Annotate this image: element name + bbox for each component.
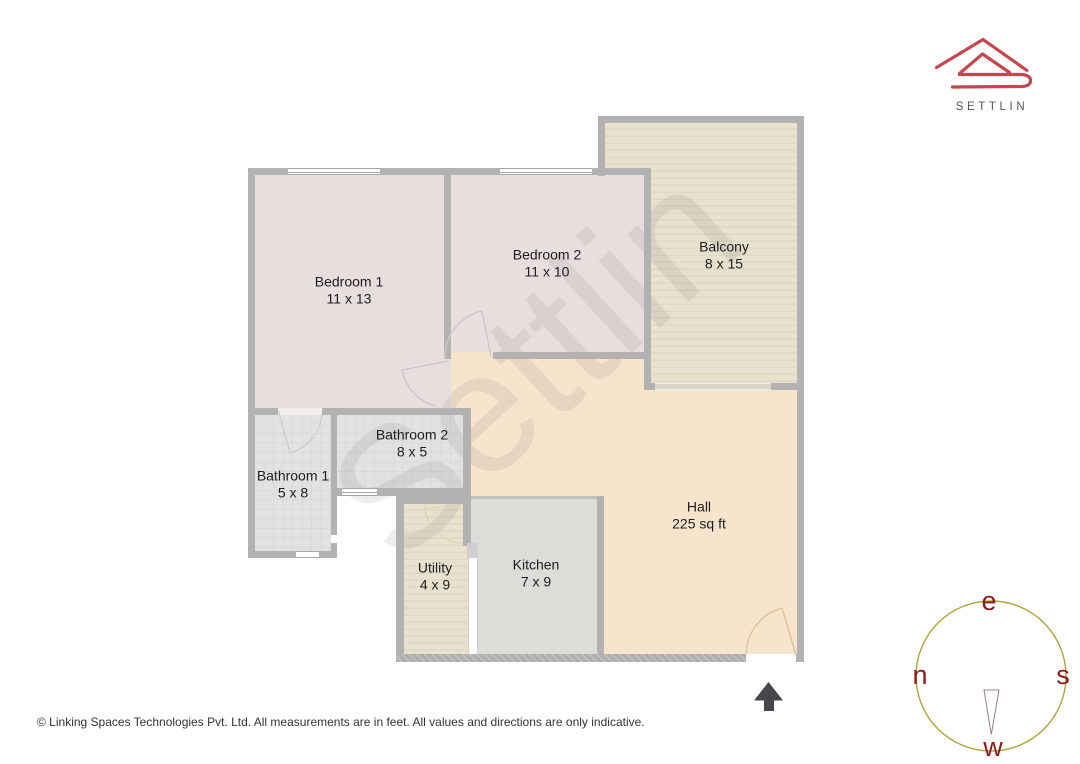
svg-text:e: e [981, 586, 996, 616]
svg-text:w: w [982, 732, 1003, 762]
svg-text:SETTLIN: SETTLIN [956, 101, 1029, 113]
svg-text:n: n [912, 660, 927, 690]
svg-text:s: s [1056, 660, 1070, 690]
